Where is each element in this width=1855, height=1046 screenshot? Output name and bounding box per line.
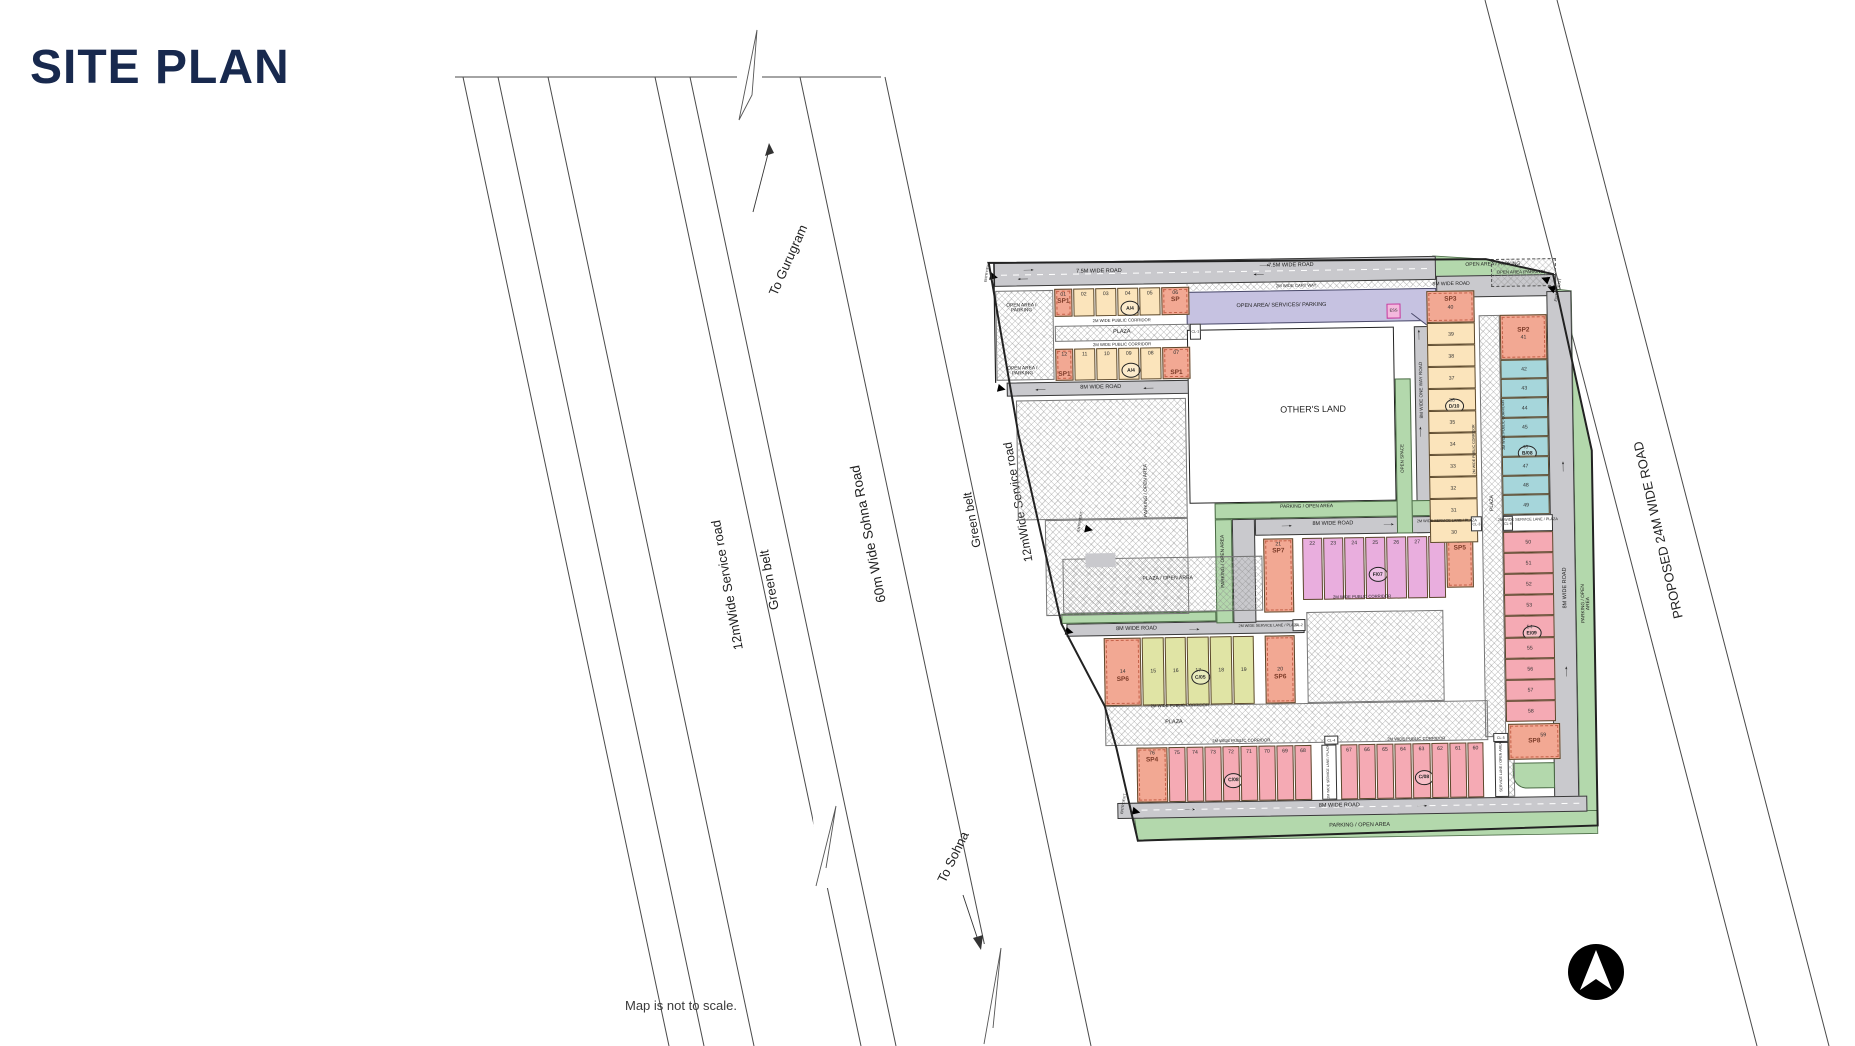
site-label-corridor: 2M WIDE PUBLIC CORRIDOR <box>1472 424 1477 474</box>
shop-71: 71 <box>1240 746 1258 801</box>
road-arrow: → <box>1020 265 1045 273</box>
site-label-parking-open-area: PARKING / OPEN AREA <box>1581 584 1592 624</box>
site-label-plaza: PLAZA <box>1113 330 1131 336</box>
shop-11: 11 <box>1074 348 1096 380</box>
site-label-parking-open-area: PARKING / OPEN AREA <box>1329 823 1390 830</box>
shop-07: 07SP1 <box>1162 347 1190 379</box>
shop-18: 18 <box>1210 636 1233 704</box>
hatch-plaza-right <box>1306 610 1444 703</box>
site-label-road-8-oneway: 8M WIDE ONE WAY ROAD <box>1419 362 1425 419</box>
site-label-corridor: 2M WIDE PUBLIC CORRIDOR <box>1333 594 1391 599</box>
road-arrow: → <box>1256 260 1281 268</box>
site-label-open-area-parking2: OPEN AREA / PARKING <box>1007 366 1037 377</box>
block-code-A-4: A/4 <box>1120 301 1139 316</box>
road-arrow: ← <box>1032 385 1057 393</box>
shop-15: 15 <box>1142 637 1165 705</box>
shop-63: 63C/08 <box>1412 743 1431 798</box>
site-label-road-8: 8M WIDE ROAD <box>1312 521 1353 527</box>
shop-42: 42 <box>1500 359 1547 379</box>
block-code-A-4: A/4 <box>1121 363 1140 378</box>
cl-box: CL-5 <box>1493 733 1508 742</box>
site-label-parking-open-area: PARKING / OPEN AREA <box>1280 504 1333 510</box>
road-arrow: ↑ <box>1417 326 1425 351</box>
shop-44: 44 <box>1501 397 1548 418</box>
road-arrow: ↑ <box>1418 423 1426 448</box>
site-label-ess: ESS <box>1390 308 1398 312</box>
site-label-open-area-parking2: OPEN AREA / PARKING <box>1006 303 1036 314</box>
shop-34: 34 <box>1428 432 1476 455</box>
shop-70: 70 <box>1258 745 1276 800</box>
block-code-C-05: C/05 <box>1191 670 1210 685</box>
shop-58: 58 <box>1506 700 1556 722</box>
shop-01: 01SP1 <box>1054 289 1072 317</box>
site-label-road-8: 8M WIDE ROAD <box>1563 567 1569 608</box>
site-label-corridor: 2M WIDE PUBLIC CORRIDOR <box>1093 342 1151 347</box>
site-label-corridor: 2M WIDE PUBLIC CORRIDOR <box>1502 400 1507 450</box>
shop-62: 62 <box>1431 743 1449 798</box>
shop-50: 50 <box>1503 531 1553 553</box>
shop-24: 24 <box>1344 537 1365 599</box>
north-arrow-icon <box>1567 943 1625 1001</box>
shop-22: 22 <box>1302 538 1323 600</box>
shop-46: 46B/08 <box>1502 436 1549 457</box>
cl-box: CL-1 <box>1190 324 1201 340</box>
site-label-corridor: 2M WIDE PUBLIC CORRIDOR <box>1387 737 1445 742</box>
shop-32: 32 <box>1429 476 1477 499</box>
road-arrow: ↑ <box>1564 663 1572 688</box>
shop-41: 41SP2 <box>1500 314 1548 360</box>
shop-60: 60 <box>1467 742 1484 797</box>
site-label-corridor: 2M WIDE PUBLIC CORRIDOR <box>1093 318 1151 323</box>
site-label-plaza-open-area: PLAZA / OPEN AREA <box>1142 576 1193 582</box>
site-label-road-8: 8M WIDE ROAD <box>1319 803 1360 809</box>
shop-sp8: SP859 <box>1508 723 1561 760</box>
cl-box: CL-4 <box>1324 736 1338 745</box>
shop-56: 56 <box>1505 658 1555 680</box>
shop-27: 27 <box>1407 536 1428 598</box>
shop-17: 17C/05 <box>1187 637 1210 705</box>
gray-stub-tl <box>1085 553 1115 567</box>
site-plan-drawing: 01SP1020304A/40506SP12SP1111009A/40807SP… <box>980 205 1630 855</box>
road-arrow: ← <box>1014 274 1039 282</box>
shop-06: 06SP <box>1161 287 1189 315</box>
road-arrow: ↑ <box>1561 458 1569 483</box>
shop-04: 04A/4 <box>1117 288 1138 316</box>
road-arrow: ← <box>1140 383 1165 391</box>
shop-64: 64 <box>1394 743 1412 798</box>
shop-74: 74 <box>1186 747 1204 802</box>
block-code-C-08: C/08 <box>1414 770 1433 785</box>
road-arrow: → <box>1186 624 1211 632</box>
shop-61: 61 <box>1449 742 1467 797</box>
site-label-road-8: 8M WIDE ROAD <box>1433 282 1470 288</box>
shop-57: 57 <box>1505 679 1555 701</box>
site-label-parking-open-area: PARKING / OPEN AREA <box>1221 535 1227 588</box>
shop-52: 52 <box>1504 573 1554 595</box>
shop-45: 45 <box>1501 417 1548 437</box>
shop-73: 73 <box>1204 746 1222 801</box>
shop-10: 10 <box>1096 348 1118 380</box>
shop-55: 55 <box>1505 637 1555 659</box>
site-label-service-lane-open: SERVICE LANE / OPEN AREA <box>1499 742 1504 792</box>
shop-19: 19 <box>1233 636 1255 704</box>
road-arrow: → <box>1182 805 1207 813</box>
shop-51: 51 <box>1503 552 1553 574</box>
scale-note: Map is not to scale. <box>625 998 737 1013</box>
site-label-corridor: 2M WIDE PUBLIC CORRIDOR <box>1151 703 1209 708</box>
green-corner-patch <box>1513 762 1555 789</box>
site-label-corridor: 2M WIDE PUBLIC CORRIDOR <box>1212 738 1270 743</box>
shop-29: 29SP5 <box>1446 535 1474 587</box>
others-land-area <box>1187 327 1397 504</box>
shop-37: 37 <box>1427 366 1475 389</box>
site-label-cart-way: 2M WIDE CART WAY <box>1276 284 1317 289</box>
shop-16: 16 <box>1165 637 1187 705</box>
shop-35: 35 <box>1428 410 1476 433</box>
shop-76: 76SP4 <box>1136 747 1168 802</box>
shop-43: 43 <box>1501 378 1548 398</box>
site-label-plaza: PLAZA <box>1165 720 1183 726</box>
shop-72: 72C/08 <box>1222 746 1240 801</box>
site-label-plaza: PLAZA <box>1490 495 1495 511</box>
shop-21: 21SP7 <box>1263 538 1294 612</box>
hatch-parking-left-1 <box>1016 398 1188 521</box>
shop-28: 28 <box>1428 536 1446 598</box>
shop-47: 47 <box>1502 456 1549 476</box>
shop-38: 38 <box>1427 344 1475 367</box>
shop-68: 68 <box>1294 745 1312 800</box>
site-plan-page: SITE PLAN To Gurugram 12mWide Service ro… <box>0 0 1855 1046</box>
site-label-open-space: OPEN SPACE <box>1400 444 1405 473</box>
road-arrow: → <box>1278 521 1303 529</box>
block-code-F-07: F/07 <box>1368 567 1387 582</box>
shop-69: 69 <box>1276 745 1294 800</box>
shop-40: 40SP3 <box>1426 290 1474 323</box>
shop-02: 02 <box>1073 288 1094 316</box>
shop-25: 25F/07 <box>1365 537 1386 599</box>
shop-66: 66 <box>1358 744 1376 799</box>
road-arrow: → <box>1414 801 1439 809</box>
site-label-parking-open-area: PARKING / OPEN AREA <box>1143 464 1149 517</box>
site-label-road-8: 8M WIDE ROAD <box>1080 385 1121 391</box>
shop-49: 49 <box>1502 494 1549 515</box>
shop-33: 33 <box>1429 454 1477 477</box>
shop-54: 54E/09 <box>1504 615 1554 638</box>
shop-26: 26 <box>1386 536 1407 598</box>
shop-39: 39 <box>1427 322 1475 345</box>
shop-14: 14SP6 <box>1104 638 1142 707</box>
shop-05: 05 <box>1139 287 1160 315</box>
shop-75: 75 <box>1168 747 1186 802</box>
shop-48: 48 <box>1502 475 1549 495</box>
shop-09: 09A/4 <box>1118 348 1140 380</box>
shop-65: 65 <box>1376 744 1394 799</box>
shop-67: 67 <box>1340 744 1358 799</box>
site-label-others-land: OTHER'S LAND <box>1280 405 1346 415</box>
shop-12: 12SP1 <box>1055 349 1074 381</box>
road-arrow: ← <box>1250 269 1275 277</box>
site-label-open-area-parking: OPEN AREA / PARKING <box>1465 262 1520 268</box>
shop-23: 23 <box>1323 537 1344 599</box>
shop-03: 03 <box>1095 288 1116 316</box>
shop-20: 20SP6 <box>1265 635 1296 703</box>
shop-53: 53 <box>1504 594 1554 616</box>
shop-36: 36D/10 <box>1428 388 1476 411</box>
site-label-road-7-5: 7.5M WIDE ROAD <box>1076 269 1122 275</box>
site-label-road-8: 8M WIDE ROAD <box>1116 626 1157 632</box>
shop-08: 08 <box>1140 347 1162 379</box>
site-label-open-area-parking-br: OPEN AREA (PARKING) <box>1497 270 1546 275</box>
road-arrow: → <box>1380 519 1405 527</box>
